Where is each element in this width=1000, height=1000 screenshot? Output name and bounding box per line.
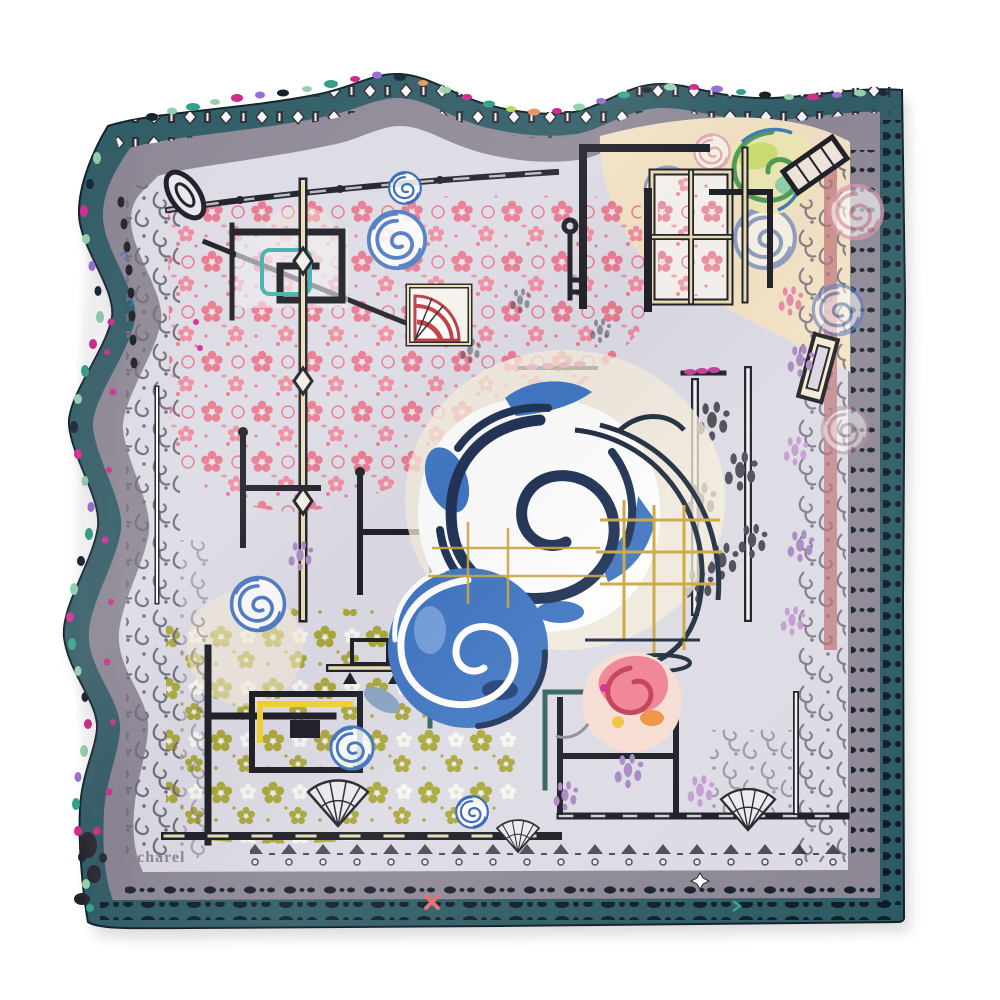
scarf: cacharel — [64, 72, 905, 929]
silk-sheen — [64, 74, 905, 928]
product-photo: cacharel — [0, 0, 1000, 1000]
scarf-illustration: cacharel — [0, 0, 1000, 1000]
